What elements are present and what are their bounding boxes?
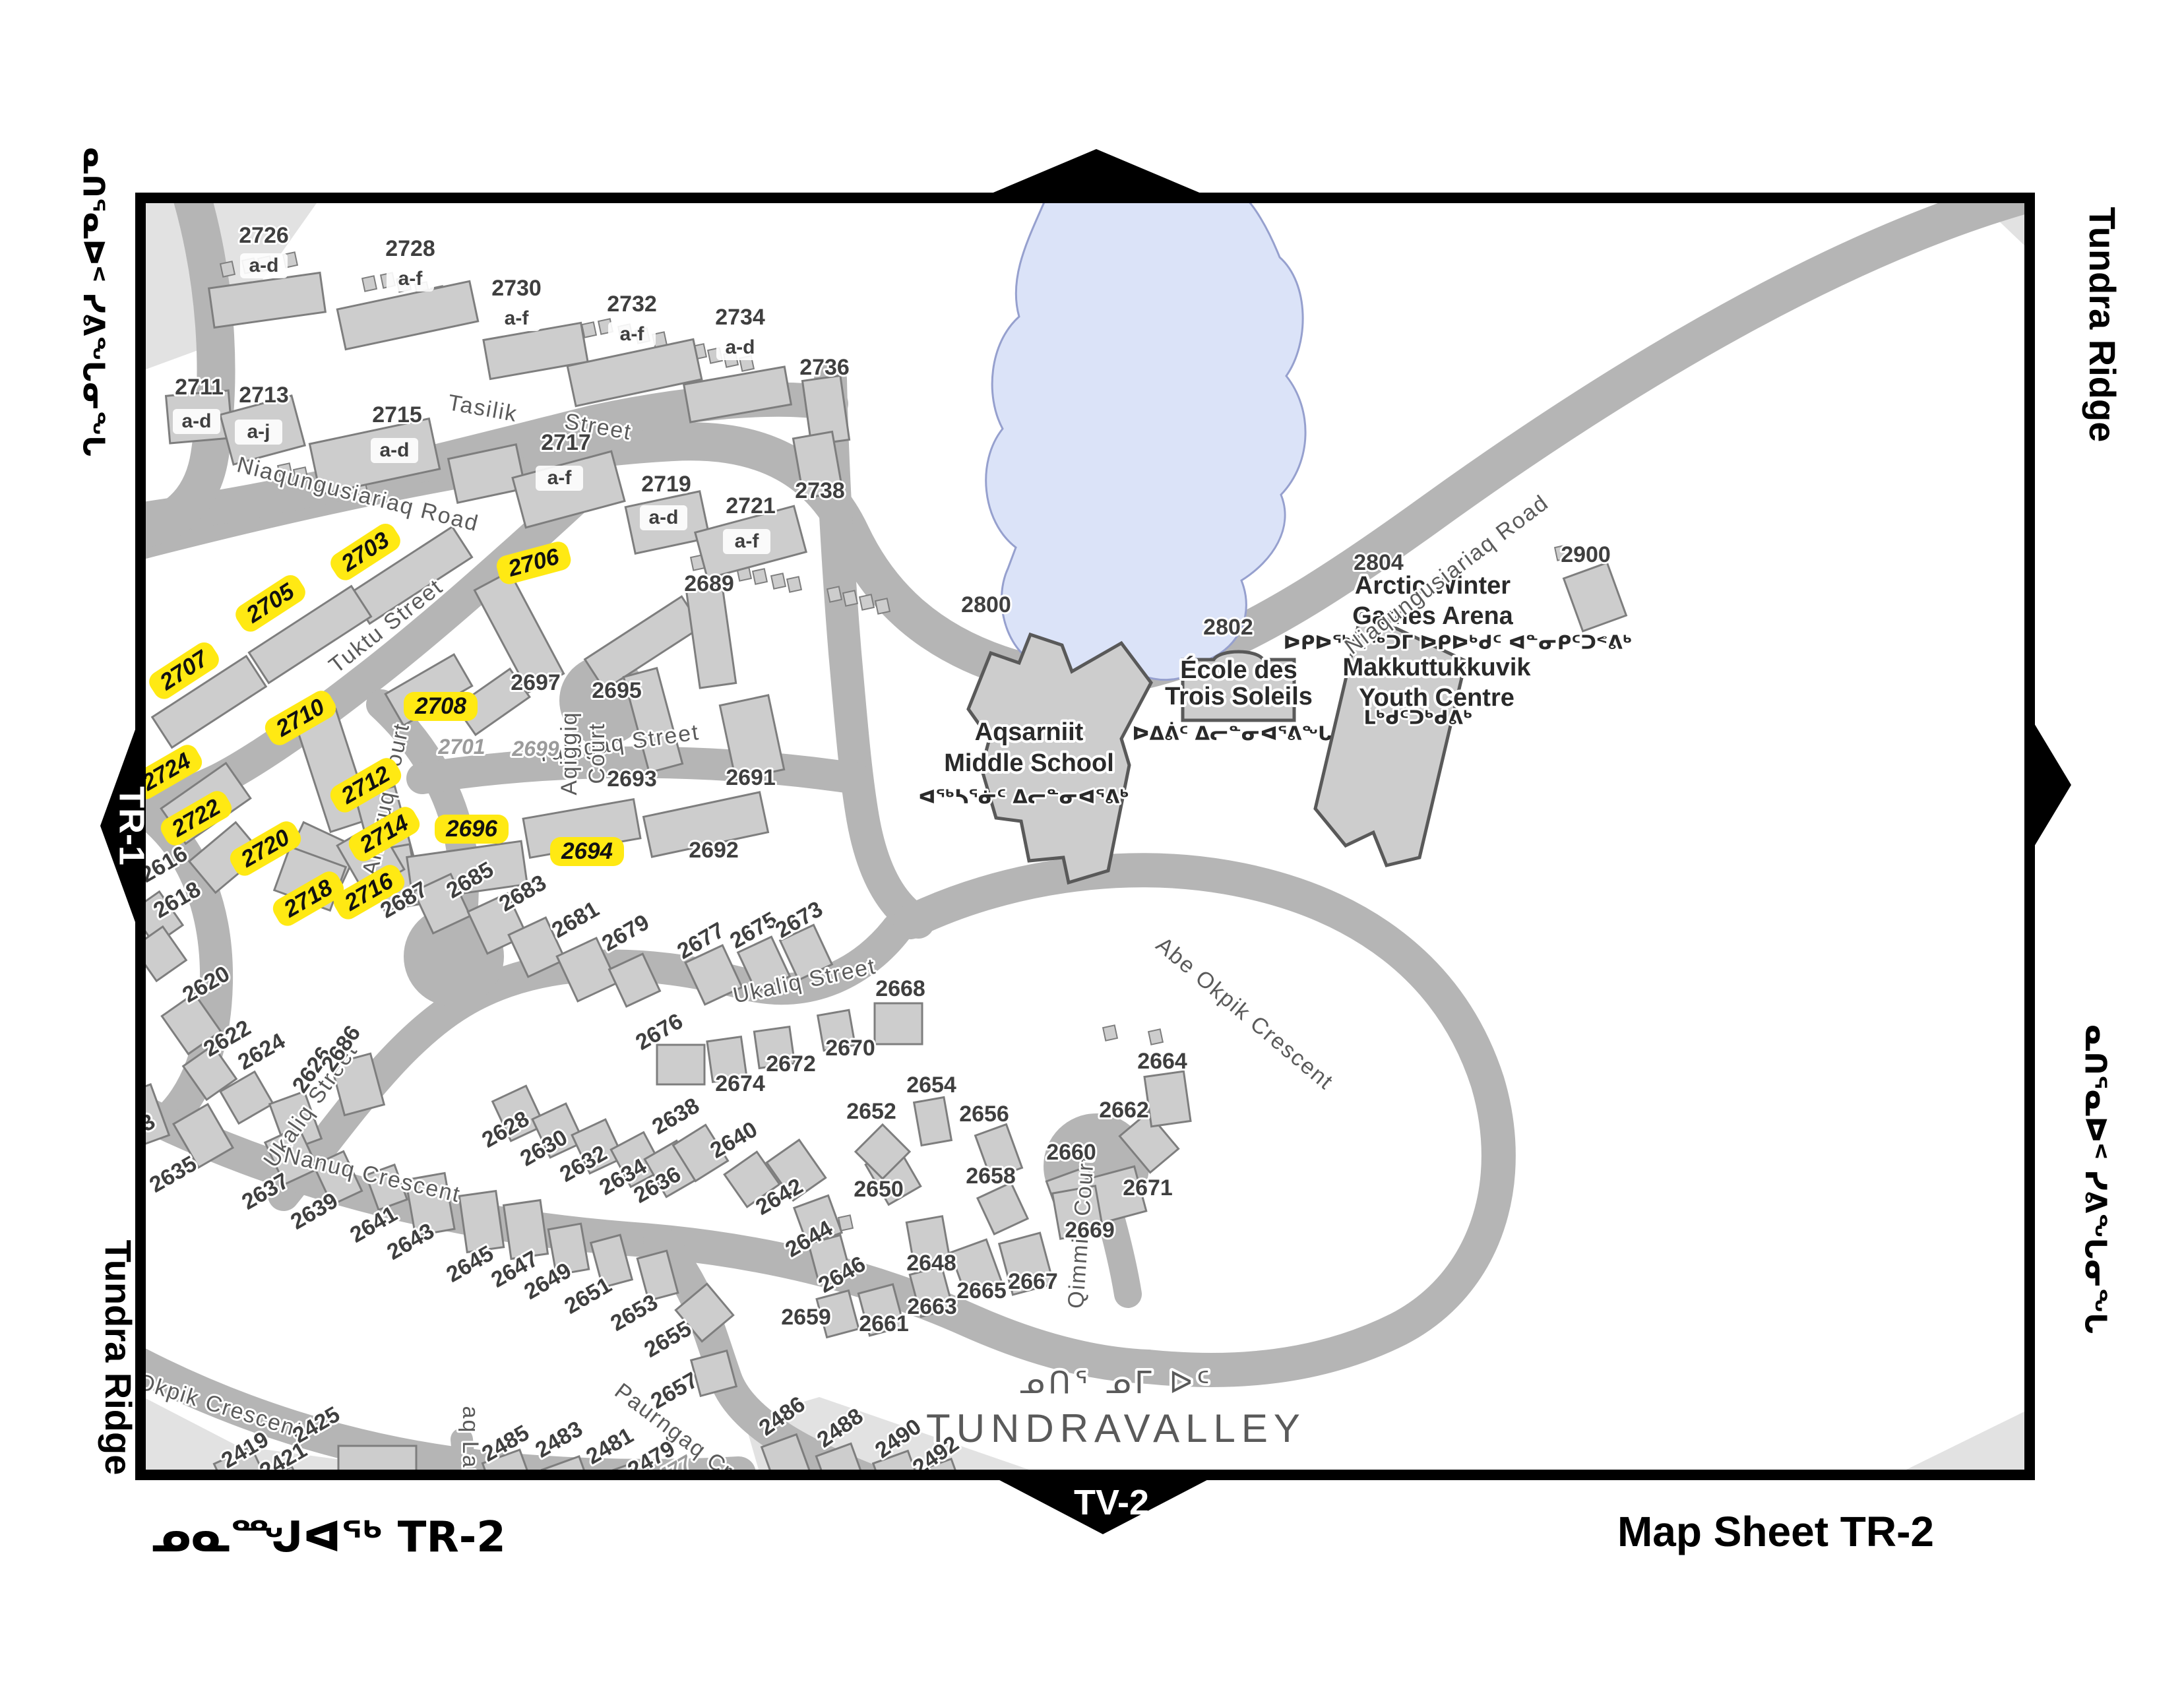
shed (787, 576, 801, 592)
shed (753, 569, 767, 584)
poi-name-line: Aqsarniit (975, 718, 1084, 746)
house-number-group: 2699 (511, 737, 559, 761)
house-number-group: 2692 (689, 838, 739, 863)
unit-range-group: a-f (608, 322, 656, 347)
unit-range-group: a-j (235, 420, 282, 445)
house-number-2697: 2697 (511, 670, 561, 695)
unit-range-group: a-d (640, 505, 687, 530)
shed (875, 598, 890, 613)
house-number-group: 2652 (846, 1099, 896, 1124)
house-number-group: 2661 (859, 1311, 909, 1336)
unit-range-group: a-d (371, 438, 418, 463)
house-number-2671: 2671 (1123, 1175, 1173, 1200)
house-number-2661: 2661 (859, 1311, 909, 1336)
poi-syllabics: ᐅᑭᐅᖅᑕᖅᑐᒥ ᐅᑭᐅᒃᑯᑦ ᐊᓐᓂᑭᑦᑐᕝᕕᒃ (1284, 631, 1633, 654)
shed (859, 594, 874, 609)
shed (1103, 1025, 1117, 1040)
sheet-code-label: ᓄᓇᙳᐊᖅ TR-2 (152, 1513, 506, 1562)
house-number-2660: 2660 (1046, 1140, 1096, 1165)
house-number-2652: 2652 (846, 1099, 896, 1124)
house-number-2713: 2713 (239, 383, 289, 408)
poi-syllabics: ᐅᐃᕖᑦ ᐃᓕᓐᓂᐊᕐᕕᖓ (1132, 722, 1332, 745)
house-number-2699: 2699 (511, 737, 559, 761)
map-sheet-title: Map Sheet TR-2 (1617, 1508, 1934, 1555)
shed (843, 590, 858, 606)
street-label-court: Court (584, 722, 609, 784)
house-number-group: 2732 (607, 292, 657, 317)
house-number-2721: 2721 (726, 493, 776, 518)
road-connector (830, 379, 918, 922)
house-number-2701: 2701 (437, 735, 485, 759)
house-number-group: 2728 (385, 236, 435, 261)
house-number-2732: 2732 (607, 292, 657, 317)
unit-range-group: a-d (716, 335, 764, 360)
adjacent-sheet-arrow-east (2024, 707, 2071, 863)
house-number-group: 2726 (239, 223, 289, 248)
house-number-group: 2711 (175, 375, 224, 400)
street-label-aqiggiq: Aqiggiq (557, 711, 582, 795)
unit-range-label: a-d (649, 507, 679, 528)
shed (1148, 1029, 1163, 1044)
house-number-group: 2665 (956, 1278, 1007, 1303)
house-number-group: 2691 (726, 765, 776, 790)
house-number-group: 2719 (641, 472, 691, 497)
arrow-label-tv2: TV-2 (1074, 1483, 1149, 1522)
house-number-2648: 2648 (906, 1251, 956, 1276)
unit-range-group: a-f (387, 266, 434, 292)
house-number-2736: 2736 (799, 355, 850, 380)
house-number-2734: 2734 (715, 305, 765, 330)
building-2689 (686, 585, 735, 688)
house-number-group: 2721 (726, 493, 776, 518)
house-number-group: 2708 (404, 692, 478, 721)
house-number-2662: 2662 (1099, 1098, 1149, 1123)
house-number-2665: 2665 (956, 1278, 1007, 1303)
house-number-group: 2738 (795, 478, 845, 503)
house-number-2667: 2667 (1008, 1269, 1058, 1294)
map-sheet-canvas: 2800AqsarniitMiddle Schoolᐊᖅᓴᕐᓃᑦ ᐃᓕᓐᓂᐊᕐᕕ… (0, 0, 2184, 1682)
tundra-valley-title: TUNDRAVALLEY (926, 1406, 1306, 1450)
building-2658 (978, 1183, 1028, 1234)
shed (362, 276, 377, 291)
house-number-group: 2654 (906, 1073, 956, 1098)
house-number-group: 2674 (715, 1071, 765, 1096)
shed (220, 261, 235, 276)
adjacent-sheet-arrow-north (978, 149, 1215, 199)
house-number-2695: 2695 (592, 678, 642, 703)
house-number-group: 2672 (766, 1051, 816, 1076)
house-number-group: 2681 (547, 896, 604, 943)
poi-syllabics: ᐊᖅᓴᕐᓃᑦ ᐃᓕᓐᓂᐊᕐᕕᒃ (918, 786, 1129, 808)
house-number-2693: 2693 (607, 766, 657, 792)
arrow-label-tr1: TR-1 (112, 786, 152, 865)
unit-range-label: a-d (726, 336, 755, 358)
poi-name-line: École des (1180, 655, 1297, 684)
unit-range-label: a-f (505, 307, 530, 329)
house-number-2738: 2738 (795, 478, 845, 503)
house-number-2694: 2694 (561, 838, 613, 864)
house-number-2719: 2719 (641, 472, 691, 497)
house-number-2711: 2711 (175, 375, 224, 400)
house-number-group: 2656 (959, 1102, 1009, 1127)
house-number-group: 2662 (1099, 1098, 1149, 1123)
building-2654 (914, 1098, 952, 1146)
house-number-group: 2734 (715, 305, 765, 330)
house-number-2668: 2668 (875, 976, 925, 1001)
unit-range-label: a-f (547, 467, 573, 489)
house-number-2681: 2681 (547, 896, 604, 943)
unit-range-group: a-f (493, 306, 540, 331)
house-number-2654: 2654 (906, 1073, 956, 1098)
house-number-2717: 2717 (541, 430, 591, 455)
house-number-2669: 2669 (1065, 1218, 1115, 1243)
building-2668 (875, 1003, 922, 1044)
house-number-group: 2671 (1123, 1175, 1173, 1200)
house-number-group: 2736 (799, 355, 850, 380)
house-number-2663: 2663 (907, 1294, 957, 1319)
poi-syllabics: ᒪᒃᑯᑦᑐᒃᑯᕕᒃ (1364, 706, 1473, 729)
house-number-2691: 2691 (726, 765, 776, 790)
house-number-group: 2658 (966, 1164, 1016, 1189)
unit-range-label: a-f (620, 323, 645, 345)
poi-name-line: Middle School (944, 749, 1114, 777)
unit-range-label: a-f (735, 530, 760, 552)
house-number-2730: 2730 (491, 276, 542, 301)
house-number-group: 2669 (1065, 1218, 1115, 1243)
house-number-2696: 2696 (445, 816, 497, 842)
unit-range-label: a-j (247, 421, 270, 443)
house-number-group: 2730 (491, 276, 542, 301)
tundra-valley-syllabics: ᓄᑎᕐ ᓄᒥ ᐅᑦ (1018, 1365, 1213, 1400)
house-number-2664: 2664 (1137, 1049, 1187, 1074)
right-edge-syllabics: ᓇᑎᕐᓇᐅᑉ ᓯᕕᖓᓂᖓ (2078, 1024, 2112, 1334)
unit-range-group: a-d (173, 409, 220, 434)
house-number-2728: 2728 (385, 236, 435, 261)
poi-name-line: Trois Soleils (1165, 683, 1313, 710)
unit-range-label: a-d (380, 439, 410, 461)
street-label-aq-lane: aq Lane (458, 1406, 483, 1497)
house-number-2708: 2708 (414, 693, 466, 719)
left-edge-syllabics: ᓇᑎᕐᓇᐅᑉ ᓯᕕᖓᓂᖓ (77, 147, 110, 457)
house-number-group: 2679 (598, 910, 654, 956)
house-number-group: 2713 (239, 383, 289, 408)
house-number-group: 2693 (607, 766, 657, 792)
building-2664 (1144, 1071, 1191, 1127)
house-number-group: 2697 (511, 670, 561, 695)
shed (771, 573, 786, 588)
right-edge-tundra-ridge: Tundra Ridge (2082, 207, 2123, 443)
house-number-group: 2660 (1046, 1140, 1096, 1165)
poi-number-2802: 2802 (1203, 615, 1253, 640)
house-number-group: 2900 (1561, 542, 1611, 567)
house-number-2650: 2650 (854, 1177, 904, 1202)
unit-range-label: a-f (398, 268, 423, 290)
street-label-tasilik: Tasilik (446, 390, 520, 427)
unit-range-group: a-f (536, 466, 583, 491)
house-number-group: 2664 (1137, 1049, 1187, 1074)
house-number-group: 2663 (907, 1294, 957, 1319)
house-number-group: 2667 (1008, 1269, 1058, 1294)
house-number-2689: 2689 (684, 571, 734, 596)
house-number-2900: 2900 (1561, 542, 1611, 567)
unit-range-group: a-f (723, 529, 770, 554)
left-edge-tundra-ridge: Tundra Ridge (98, 1240, 139, 1476)
poi-number-2800: 2800 (961, 592, 1011, 617)
house-number-group: 2695 (592, 678, 642, 703)
house-number-2726: 2726 (239, 223, 289, 248)
house-number-group: 2648 (906, 1251, 956, 1276)
house-number-group: 2715 (372, 402, 422, 427)
house-number-2672: 2672 (766, 1051, 816, 1076)
unit-range-label: a-d (182, 410, 212, 432)
unit-range-label: a-d (249, 255, 279, 276)
house-number-2656: 2656 (959, 1102, 1009, 1127)
building-2676 (657, 1045, 704, 1084)
house-number-group: 2668 (875, 976, 925, 1001)
unit-range-group: a-d (240, 253, 288, 278)
house-number-group: 2696 (435, 815, 509, 844)
house-number-group: 2701 (437, 735, 485, 759)
house-number-2715: 2715 (372, 402, 422, 427)
building-2900 (1564, 563, 1627, 631)
poi-name-line: Makkuttukkuvik (1342, 654, 1531, 681)
house-number-2679: 2679 (598, 910, 654, 956)
terrain-patch (1906, 1412, 2024, 1470)
house-number-2658: 2658 (966, 1164, 1016, 1189)
house-number-group: 2650 (854, 1177, 904, 1202)
house-number-2692: 2692 (689, 838, 739, 863)
house-number-group: 2689 (684, 571, 734, 596)
house-number-2659: 2659 (781, 1305, 831, 1330)
house-number-group: 2659 (781, 1305, 831, 1330)
house-number-group: 2670 (825, 1036, 875, 1061)
house-number-group: 2694 (550, 837, 624, 866)
house-number-2674: 2674 (715, 1071, 765, 1096)
house-number-group: 2717 (541, 430, 591, 455)
house-number-2670: 2670 (825, 1036, 875, 1061)
shed (827, 586, 842, 602)
